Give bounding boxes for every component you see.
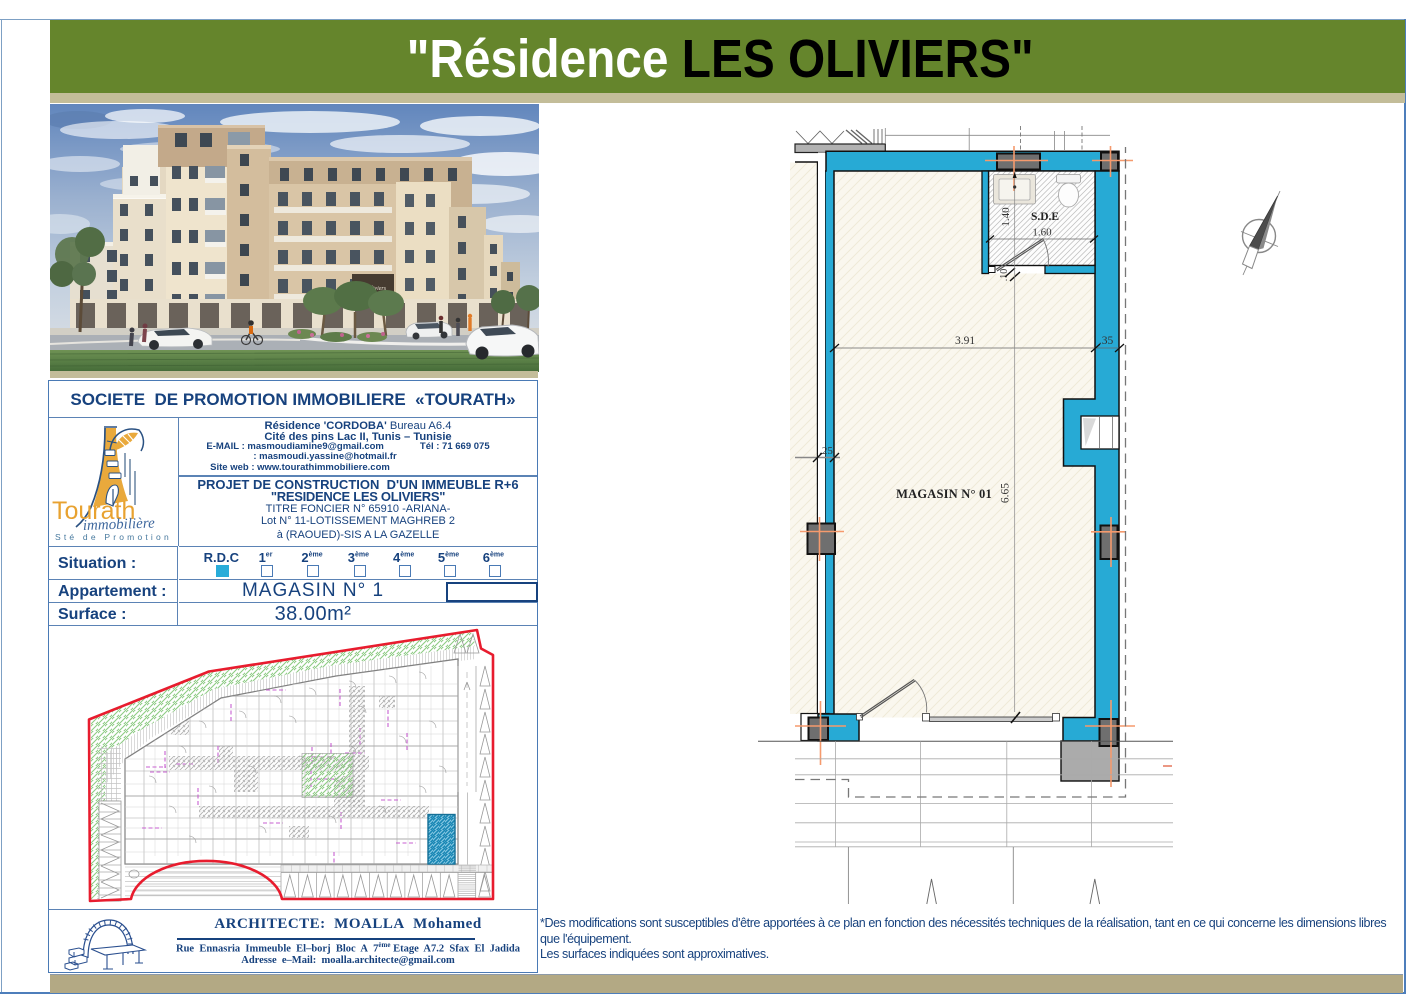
svg-text:.25: .25 (819, 445, 833, 457)
svg-text:1.60: 1.60 (1032, 227, 1052, 239)
svg-text:Sté de Promotion: Sté de Promotion (55, 532, 172, 542)
svg-text:S.D.E: S.D.E (1031, 211, 1059, 223)
svg-text:6.65: 6.65 (1000, 483, 1012, 503)
svg-text:.10: .10 (999, 269, 1010, 282)
svg-text:3.91: 3.91 (955, 335, 975, 347)
svg-text:1.40: 1.40 (1000, 207, 1012, 227)
svg-text:MAGASIN N° 01: MAGASIN N° 01 (896, 487, 992, 501)
svg-text:.35: .35 (1099, 335, 1114, 347)
